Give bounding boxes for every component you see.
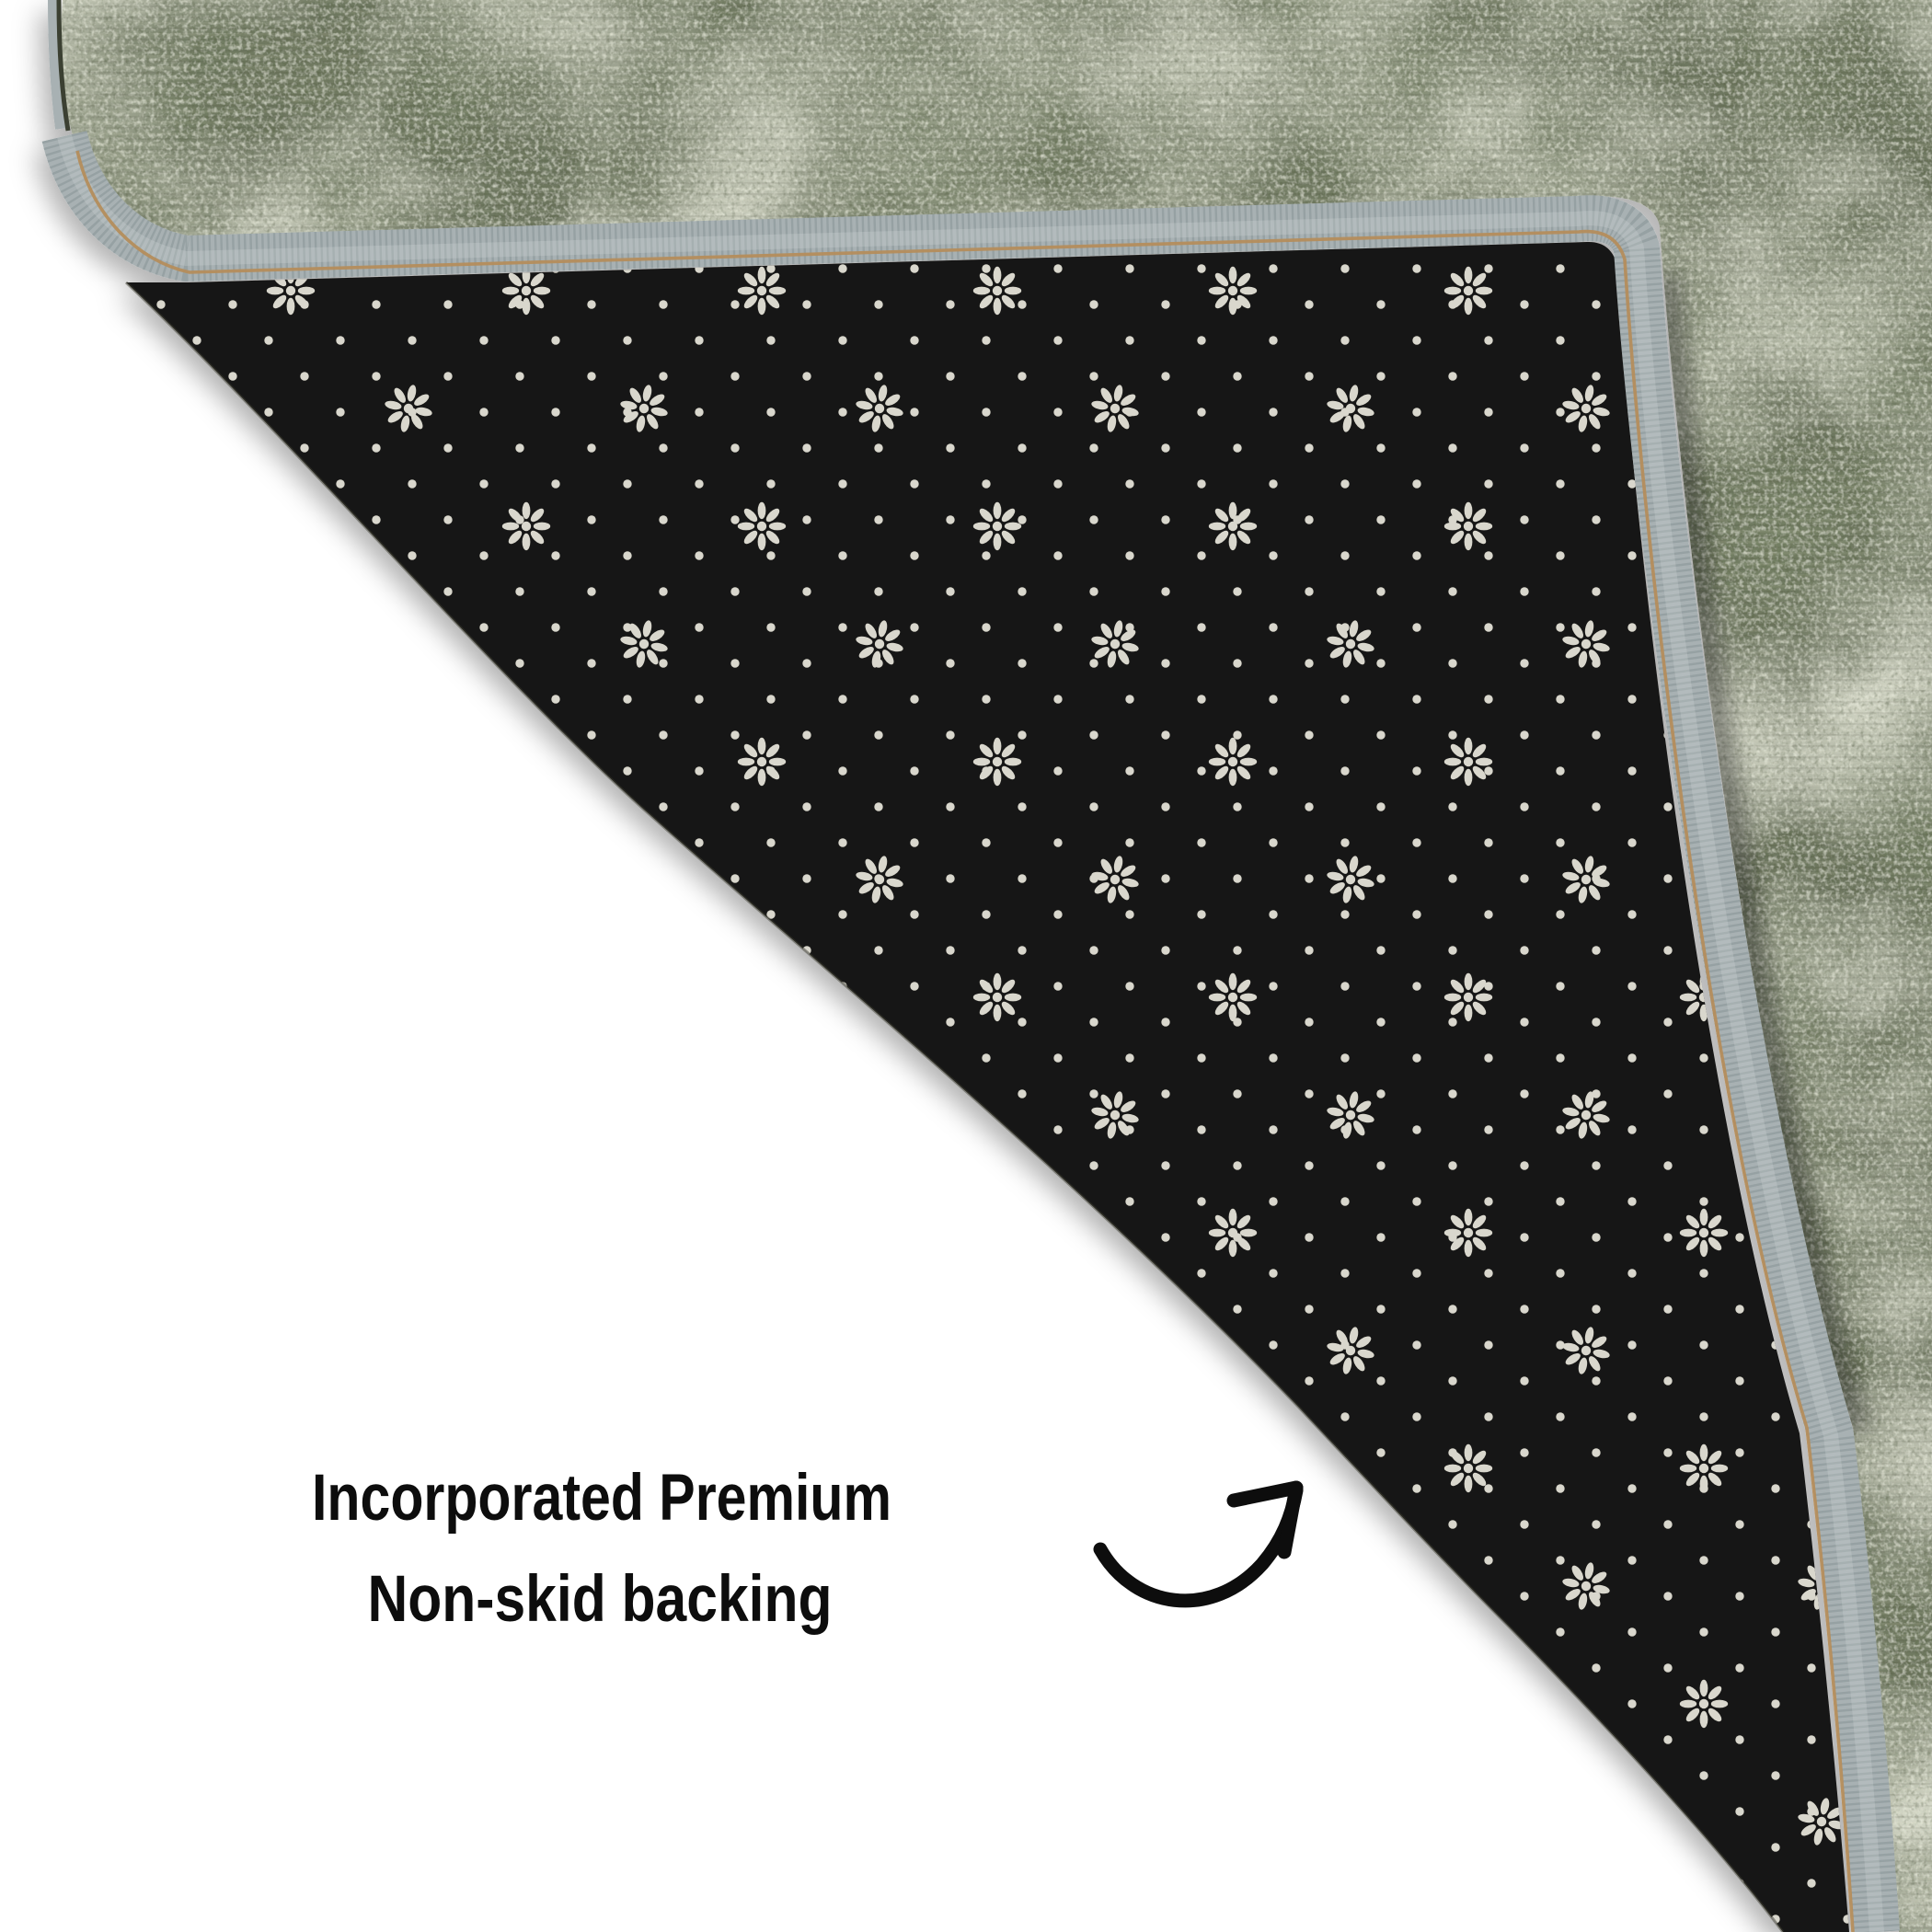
rug-photo-canvas: Incorporated Premium Non-skid backing	[0, 0, 1932, 1932]
product-image: Incorporated Premium Non-skid backing	[0, 0, 1932, 1932]
annotation-line-2: Non-skid backing	[368, 1563, 833, 1636]
annotation-line-1: Incorporated Premium	[312, 1462, 891, 1535]
